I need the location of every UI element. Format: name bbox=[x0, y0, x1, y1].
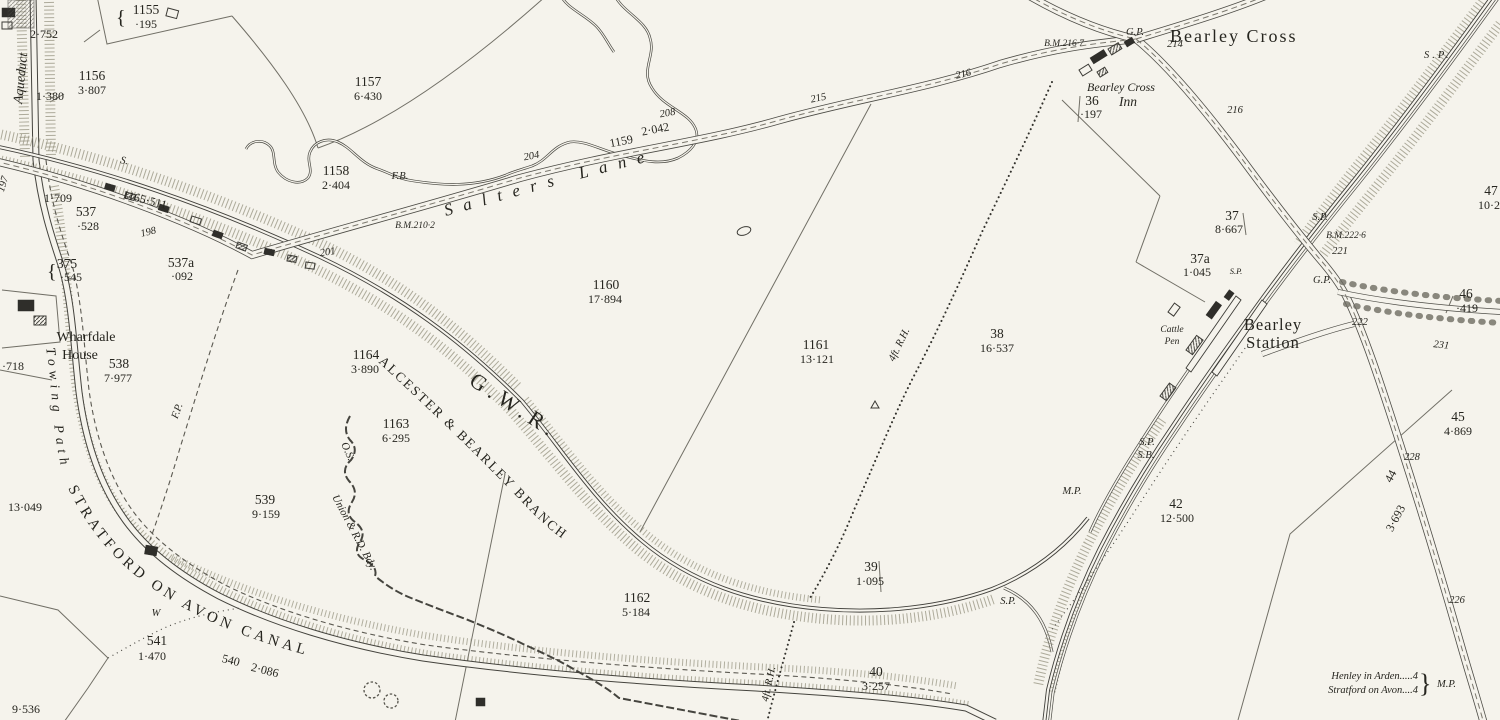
footbridge-label: F.B. bbox=[391, 171, 409, 182]
guidepost-label-1: G.P. bbox=[1126, 27, 1144, 38]
parcel-38-area: 16·537 bbox=[980, 341, 1014, 355]
milepost-line1: Henley in Arden.....4 bbox=[1330, 671, 1418, 682]
parcel-375-no: 375 bbox=[57, 256, 78, 271]
parcel-1164-area: 3·890 bbox=[351, 362, 379, 376]
wharfdale-outbuilding bbox=[34, 316, 46, 325]
pit-ring-2 bbox=[384, 694, 398, 708]
signalpost-label-junction: S.P. bbox=[1000, 596, 1016, 607]
parcel-541-no: 541 bbox=[147, 633, 167, 648]
place-wharfdale-2: House bbox=[62, 348, 98, 363]
parcel-539-area: 9·159 bbox=[252, 507, 280, 521]
parcel-538-area: 7·977 bbox=[104, 371, 132, 385]
parcel-36-no: 36 bbox=[1085, 93, 1099, 108]
signalbox-label: S.B. bbox=[1138, 450, 1155, 461]
parcel-37-area: 8·667 bbox=[1215, 222, 1243, 236]
area-1380: 1·380 bbox=[36, 89, 64, 103]
parcel-46-area: ·419 bbox=[1456, 301, 1478, 315]
road-number-216b: 216 bbox=[1227, 105, 1244, 116]
pond bbox=[736, 225, 752, 237]
parcel-39-no: 39 bbox=[864, 559, 878, 574]
parcel-1161-no: 1161 bbox=[803, 337, 830, 352]
milepost-brace: } bbox=[1419, 669, 1431, 698]
place-inn-1: Bearley Cross bbox=[1087, 80, 1155, 94]
parcel-1156-area: 3·807 bbox=[78, 83, 106, 97]
place-aqueduct: Aqueduct bbox=[10, 51, 30, 106]
dotted-fence bbox=[768, 82, 1052, 718]
roads bbox=[0, 0, 1500, 720]
railway-company-label: G.W.R. bbox=[465, 367, 564, 443]
parcel-42-no: 42 bbox=[1169, 496, 1183, 511]
signalpost-label-bridge: S.P. bbox=[1312, 212, 1328, 223]
parcel-44-no: 44 bbox=[1381, 468, 1399, 485]
station-building bbox=[1224, 290, 1234, 301]
benchmark-210: B.M.210·2 bbox=[395, 221, 435, 231]
road-number-228: 228 bbox=[1404, 452, 1421, 463]
parcel-47-no: 47 bbox=[1484, 183, 1498, 198]
goods-shed bbox=[1160, 383, 1176, 401]
parcel-37a-area: 1·045 bbox=[1183, 265, 1211, 279]
parcel-1158-no: 1158 bbox=[323, 163, 350, 178]
os-map-sheet: Bearley Cross Bearley Station Bearley Cr… bbox=[0, 0, 1500, 720]
road-number-231: 231 bbox=[1433, 339, 1450, 352]
parcel-1160-no: 1160 bbox=[593, 277, 620, 292]
parcel-1162-no: 1162 bbox=[624, 590, 651, 605]
benchmark-216: B.M.216·7 bbox=[1044, 39, 1085, 49]
parcel-47-area: 10·21 bbox=[1478, 198, 1500, 212]
main-rails-outer bbox=[1044, 0, 1494, 720]
parcel-46-no: 46 bbox=[1459, 286, 1473, 301]
main-cutting-hatch-ne bbox=[1298, 2, 1500, 256]
parcel-40-area: 3·257 bbox=[862, 679, 890, 693]
pit-ring-1 bbox=[364, 682, 380, 698]
signalpost-label-small: S.P. bbox=[1230, 266, 1243, 276]
survey-triangle bbox=[871, 401, 879, 408]
parcel-537-area: ·528 bbox=[77, 219, 99, 233]
parcel-36-area: ·197 bbox=[1080, 107, 1102, 121]
parcel-38-no: 38 bbox=[990, 326, 1004, 341]
footpath-line bbox=[150, 270, 238, 540]
main-rails-inner bbox=[1044, 0, 1494, 720]
parcel-1157-area: 6·430 bbox=[354, 89, 382, 103]
parcel-1155-no: 1155 bbox=[133, 2, 160, 17]
road-dashed-edges bbox=[0, 0, 1484, 720]
road-number-221: 221 bbox=[1332, 246, 1348, 257]
parcel-39-area: 1·095 bbox=[856, 574, 884, 588]
parcel-44-area: 3·693 bbox=[1383, 502, 1409, 533]
building bbox=[1090, 50, 1107, 64]
parcel-540-no: 540 bbox=[221, 651, 242, 669]
milepost-label-rail: M.P. bbox=[1061, 486, 1081, 497]
main-railway bbox=[1038, 0, 1500, 720]
fences bbox=[345, 82, 1052, 720]
cattle-pen-1: Cattle bbox=[1160, 325, 1183, 335]
parcel-541-area: 1·470 bbox=[138, 649, 166, 663]
map-canvas: Bearley Cross Bearley Station Bearley Cr… bbox=[0, 0, 1500, 720]
parcel-375-area: ·545 bbox=[60, 270, 82, 284]
main-second-track-inner bbox=[1049, 0, 1499, 720]
parcel-539-no: 539 bbox=[255, 492, 276, 507]
towing-path-text: Towing Path bbox=[43, 346, 74, 470]
parcel-42-area: 12·500 bbox=[1160, 511, 1194, 525]
parcel-40-no: 40 bbox=[869, 664, 883, 679]
signalpost-label-station: S.P. bbox=[1139, 437, 1155, 448]
parcel-538-no: 538 bbox=[109, 356, 130, 371]
parcel-1159-area: 2·042 bbox=[640, 120, 670, 139]
parcel-540-area: 2·086 bbox=[250, 660, 281, 680]
road-number-198: 198 bbox=[139, 225, 158, 240]
road-number-197: 197 bbox=[0, 174, 12, 193]
union-boundary-label: Union & R.D. Bdy. bbox=[329, 493, 379, 573]
canal-side-house bbox=[144, 545, 157, 556]
parcel-1159-no: 1159 bbox=[608, 132, 634, 150]
brace-1155: { bbox=[116, 7, 126, 29]
place-bearley-station-1: Bearley bbox=[1244, 315, 1302, 334]
milepost-label: M.P. bbox=[1436, 679, 1456, 690]
parcel-45-no: 45 bbox=[1451, 409, 1465, 424]
labels: Bearley Cross Bearley Station Bearley Cr… bbox=[0, 2, 1500, 716]
parcel-1161-area: 13·121 bbox=[800, 352, 834, 366]
place-inn-2: Inn bbox=[1118, 94, 1137, 109]
cottage bbox=[287, 255, 297, 262]
well-label: W bbox=[152, 608, 162, 619]
field-barn bbox=[476, 698, 485, 706]
building bbox=[1079, 64, 1092, 76]
fence-label-a: 4ft. R.H. bbox=[887, 327, 912, 364]
parcel-1155-area: ·195 bbox=[135, 17, 157, 31]
signalpost-label-topright: S.P. bbox=[1424, 50, 1452, 61]
building bbox=[166, 8, 179, 19]
area-718: ·718 bbox=[2, 359, 24, 373]
cattle-pen-2: Pen bbox=[1164, 337, 1180, 347]
road-number-201: 201 bbox=[319, 246, 336, 259]
parcel-1162-area: 5·184 bbox=[622, 605, 650, 619]
place-wharfdale-1: Wharfdale bbox=[56, 330, 115, 345]
parcel-1160-area: 17·894 bbox=[588, 292, 622, 306]
place-bearley-cross: Bearley Cross bbox=[1170, 26, 1297, 46]
footpath-label: F.P. bbox=[170, 402, 186, 421]
road-number-215: 215 bbox=[810, 92, 828, 106]
os-boundary-label: O.S. bbox=[338, 440, 357, 462]
area-9536: 9·536 bbox=[12, 702, 40, 716]
building bbox=[1097, 67, 1108, 77]
garden-plot bbox=[8, 0, 34, 28]
parcel-1164-no: 1164 bbox=[353, 347, 380, 362]
road-number-216a: 216 bbox=[955, 67, 974, 81]
guidepost-label-2: G.P. bbox=[1313, 275, 1331, 286]
brace-375: { bbox=[47, 261, 57, 283]
benchmark-222: B.M.222·6 bbox=[1326, 231, 1366, 241]
area-13049: 13·049 bbox=[8, 500, 42, 514]
area-1709: 1·709 bbox=[44, 191, 72, 205]
parcel-1163-no: 1163 bbox=[383, 416, 410, 431]
road-number-226: 226 bbox=[1449, 595, 1466, 606]
parcel-1158-area: 2·404 bbox=[322, 178, 350, 192]
fence-label-b: 4ft. R.H. bbox=[760, 666, 778, 703]
cattle-pen-building bbox=[1168, 303, 1180, 316]
place-bearley-station-2: Station bbox=[1246, 333, 1300, 352]
parcel-537a-no: 537a bbox=[168, 255, 194, 270]
parcel-45-area: 4·869 bbox=[1444, 424, 1472, 438]
towing-path-label: Towing Path bbox=[43, 346, 74, 470]
milepost-line2: Stratford on Avon....4 bbox=[1328, 685, 1419, 696]
road-number-222: 222 bbox=[1352, 317, 1369, 328]
station-building bbox=[1206, 301, 1222, 319]
area-2752: 2·752 bbox=[30, 27, 58, 41]
wharfdale-house-building bbox=[18, 300, 34, 311]
parcel-37a-no: 37a bbox=[1190, 251, 1210, 266]
parcel-537-no: 537 bbox=[76, 204, 97, 219]
road-number-208: 208 bbox=[659, 107, 677, 121]
main-second-track bbox=[1049, 0, 1499, 720]
road-number-214: 214 bbox=[1167, 39, 1184, 50]
parcel-1163-area: 6·295 bbox=[382, 431, 410, 445]
parcel-537a-area: ·092 bbox=[171, 269, 193, 283]
main-second-track-outer bbox=[1049, 0, 1499, 720]
parcel-37-no: 37 bbox=[1225, 208, 1239, 223]
parcel-1157-no: 1157 bbox=[355, 74, 382, 89]
parcel-1156-no: 1156 bbox=[79, 68, 106, 83]
